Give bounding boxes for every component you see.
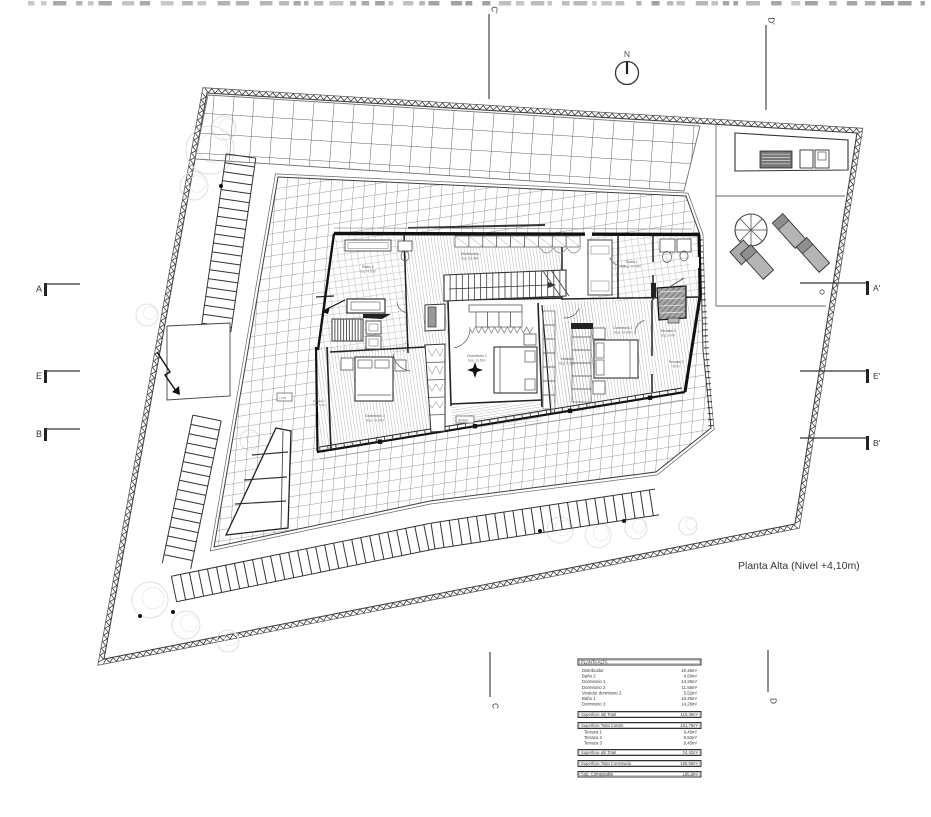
svg-text:Sup. 9,4m: Sup. 9,4m (661, 334, 676, 338)
svg-text:Distribuidor: Distribuidor (582, 668, 604, 673)
svg-text:11,56m²: 11,56m² (682, 685, 698, 690)
svg-text:9,45m²: 9,45m² (684, 730, 698, 735)
svg-text:14,26m²: 14,26m² (681, 679, 697, 684)
svg-text:C: C (491, 703, 500, 709)
svg-text:A: A (36, 284, 42, 294)
svg-text:Sup. 10,45m: Sup. 10,45m (623, 265, 641, 269)
svg-text:151,76m²: 151,76m² (680, 723, 698, 728)
svg-text:Terraza 1: Terraza 1 (584, 730, 603, 735)
svg-text:Terraza 2: Terraza 2 (584, 735, 603, 740)
svg-text:Baño 2: Baño 2 (582, 674, 596, 679)
svg-text:Superficie Total Construida: Superficie Total Construida (581, 761, 632, 766)
svg-text:E': E' (873, 371, 881, 381)
svg-text:A': A' (873, 283, 881, 293)
svg-text:115,36m²: 115,36m² (681, 712, 699, 717)
svg-text:Sup. 11,56m: Sup. 11,56m (468, 359, 486, 363)
svg-text:Sup. 14,26m: Sup. 14,26m (614, 331, 632, 335)
svg-text:10,46m²: 10,46m² (681, 668, 697, 673)
svg-text:185,9m²: 185,9m² (683, 771, 699, 776)
svg-text:4,50m²: 4,50m² (684, 674, 698, 679)
svg-text:Vestidor dormitorio 2: Vestidor dormitorio 2 (582, 690, 622, 695)
svg-text:Baño 1: Baño 1 (626, 260, 637, 264)
svg-text:Sup. Computable: Sup. Computable (581, 771, 614, 776)
svg-text:Sup. 14,26m: Sup. 14,26m (366, 419, 384, 423)
svg-text:169,65m²: 169,65m² (680, 761, 698, 766)
svg-text:5,52m²: 5,52m² (684, 690, 698, 695)
svg-text:14,26m²: 14,26m² (681, 702, 697, 707)
svg-text:5,5m: 5,5m (672, 365, 679, 369)
svg-text:E: E (36, 371, 42, 381)
svg-text:B: B (36, 429, 42, 439)
svg-text:PLANTA ALTA: PLANTA ALTA (581, 659, 608, 664)
svg-text:Superficie útil Total: Superficie útil Total (581, 712, 616, 717)
svg-text:Dormitorio 3: Dormitorio 3 (582, 702, 606, 707)
svg-text:D': D' (767, 17, 776, 25)
svg-text:Superficie útil Total: Superficie útil Total (581, 750, 616, 755)
svg-text:terraza: terraza (458, 419, 468, 423)
svg-text:Vestidor: Vestidor (561, 357, 575, 361)
svg-text:Terraza 3: Terraza 3 (661, 329, 676, 333)
svg-text:Sup. 9,45m: Sup. 9,45m (313, 403, 326, 407)
svg-text:Planta Alta (Nivel +4,10m): Planta Alta (Nivel +4,10m) (738, 560, 860, 572)
svg-text:Terraza 3: Terraza 3 (584, 741, 603, 746)
svg-text:Distribuidor: Distribuidor (461, 252, 480, 256)
svg-text:Dormitorio 1: Dormitorio 1 (613, 326, 633, 330)
svg-text:5,52m²: 5,52m² (684, 735, 698, 740)
svg-text:Sup. 10,46m: Sup. 10,46m (461, 257, 479, 261)
svg-text:Superficie Total Constr.: Superficie Total Constr. (581, 723, 624, 728)
svg-text:Terraza 1: Terraza 1 (313, 399, 325, 403)
svg-text:24,42m²: 24,42m² (683, 750, 699, 755)
svg-text:Sup. 4,50m: Sup. 4,50m (360, 270, 377, 274)
svg-text:9,45m²: 9,45m² (684, 741, 698, 746)
svg-text:Dormitorio 1: Dormitorio 1 (582, 679, 606, 684)
svg-text:Terraza 2: Terraza 2 (669, 360, 684, 364)
svg-text:D: D (769, 698, 778, 704)
svg-text:B': B' (873, 438, 881, 448)
svg-text:C': C' (490, 6, 499, 14)
svg-text:t 1.80: t 1.80 (279, 396, 286, 400)
svg-text:Dormitorio 3: Dormitorio 3 (365, 414, 385, 418)
svg-text:10,45m²: 10,45m² (681, 696, 697, 701)
svg-text:Dormitorio 2: Dormitorio 2 (467, 354, 487, 358)
svg-text:Dormitorio 2: Dormitorio 2 (582, 685, 606, 690)
svg-text:Baño 2: Baño 2 (362, 265, 373, 269)
svg-text:Sup. 5,52m: Sup. 5,52m (559, 362, 576, 366)
svg-text:Baño 1: Baño 1 (582, 696, 596, 701)
svg-text:N: N (624, 49, 630, 59)
